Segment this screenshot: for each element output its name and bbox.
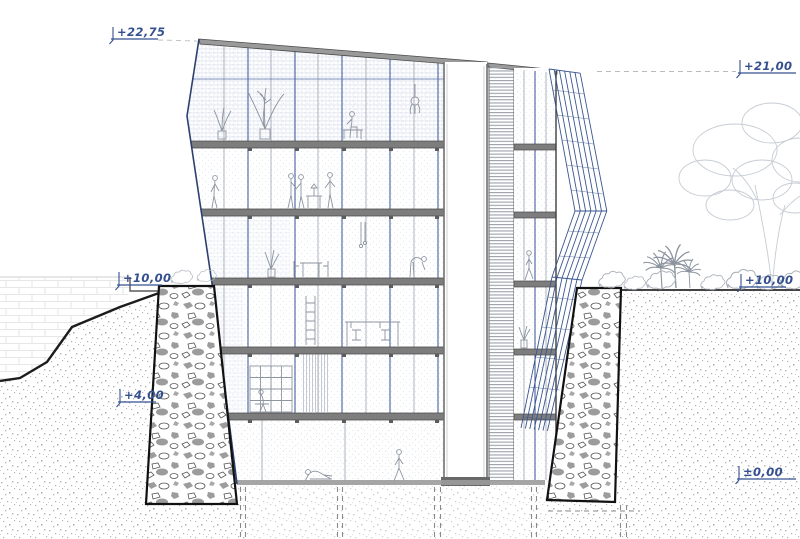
tree — [679, 103, 800, 290]
elevation-label-street-right: +10,00 — [745, 273, 793, 287]
elevation-label-top-right: +21,00 — [744, 59, 792, 73]
elevation-label-street-left: +10,00 — [123, 271, 171, 285]
earth-under-left-gabion — [145, 504, 245, 539]
core-shaft — [441, 62, 490, 486]
louver-band — [489, 66, 514, 482]
slatted-partition — [301, 353, 330, 412]
ground-floor-slab — [237, 480, 545, 485]
palm-plants — [643, 245, 701, 289]
section-drawing: +22,75 +21,00 +10,00 +10,00 +4,00 ±0,00 — [0, 0, 800, 539]
section-drawing-canvas: +22,75 +21,00 +10,00 +10,00 +4,00 ±0,00 — [0, 0, 800, 539]
elevation-label-top-left: +22,75 — [117, 25, 165, 39]
earth-center — [237, 486, 548, 539]
building-section — [185, 38, 557, 486]
elevation-tick-icon — [110, 27, 114, 44]
elevation-tick-icon — [737, 60, 741, 78]
elevation-label-base-right: ±0,00 — [743, 465, 783, 479]
elevation-label-mid-left: +4,00 — [124, 388, 164, 402]
